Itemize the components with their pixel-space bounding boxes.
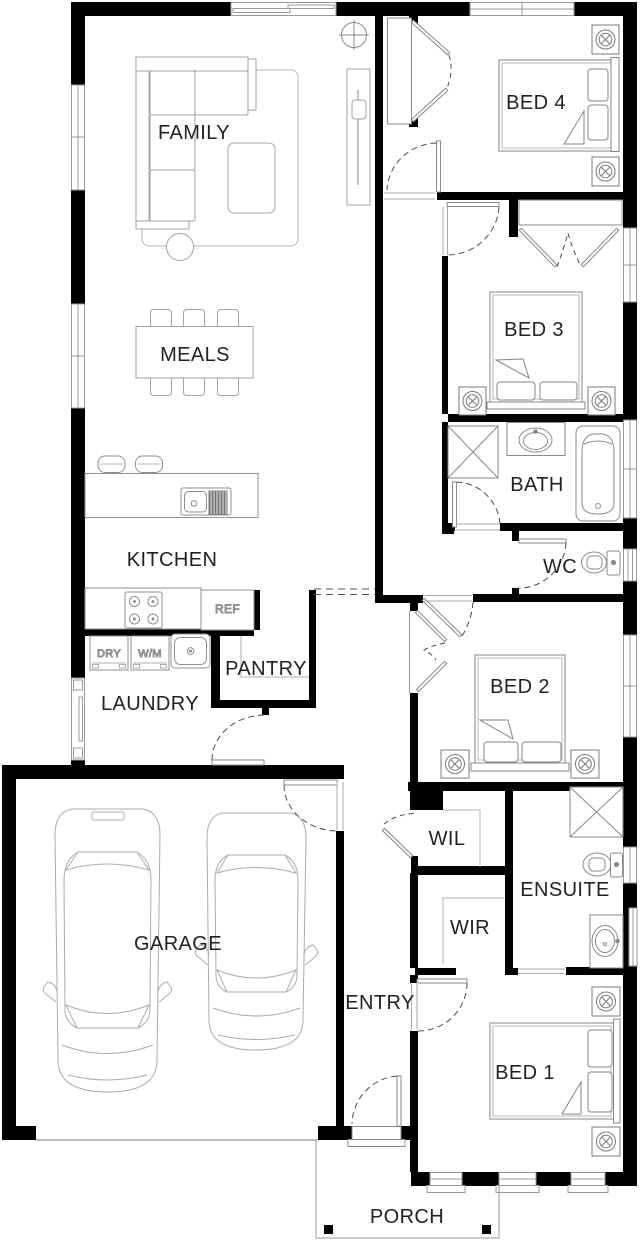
svg-text:WIL: WIL [429,828,466,850]
svg-text:DRY: DRY [97,648,121,660]
svg-text:GARAGE: GARAGE [134,933,222,955]
svg-text:BED 1: BED 1 [495,1062,555,1084]
svg-text:WC: WC [543,556,577,578]
svg-text:FAMILY: FAMILY [158,122,230,144]
svg-text:W/M: W/M [138,648,162,660]
svg-text:PORCH: PORCH [370,1206,444,1228]
svg-text:ENSUITE: ENSUITE [520,879,609,901]
svg-text:WIR: WIR [450,917,490,939]
svg-text:BED 2: BED 2 [490,676,550,698]
svg-text:BED 3: BED 3 [504,319,564,341]
svg-text:LAUNDRY: LAUNDRY [101,693,199,715]
svg-text:KITCHEN: KITCHEN [127,549,218,571]
svg-text:BATH: BATH [510,474,563,496]
svg-text:PANTRY: PANTRY [225,658,307,680]
svg-text:ENTRY: ENTRY [345,992,414,1014]
svg-text:BED 4: BED 4 [506,92,566,114]
svg-text:REF: REF [215,602,240,616]
svg-text:MEALS: MEALS [160,344,230,366]
